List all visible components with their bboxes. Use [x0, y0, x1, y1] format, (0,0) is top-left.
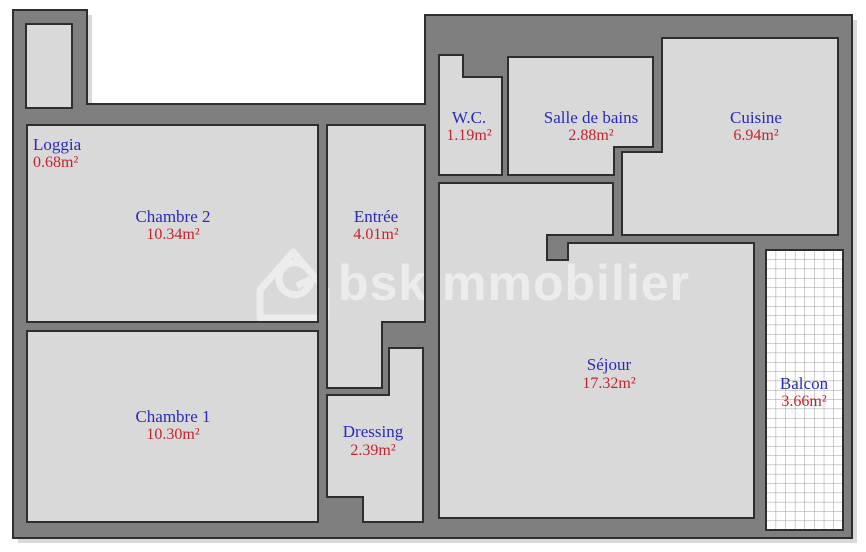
- label-cuisine-name: Cuisine: [730, 108, 782, 127]
- label-sdb-area: 2.88m²: [568, 127, 613, 144]
- label-loggia-area: 0.68m²: [33, 154, 78, 171]
- label-sdb-name: Salle de bains: [544, 108, 638, 127]
- label-balcon-area: 3.66m²: [781, 393, 826, 410]
- label-sejour-area: 17.32m²: [582, 375, 635, 392]
- floorplan-page: bskimmobilier Loggia 0.68m² Chambre 2 10…: [0, 0, 866, 552]
- room-loggia: [26, 24, 72, 108]
- label-cuisine-area: 6.94m²: [733, 127, 778, 144]
- label-entree-name: Entrée: [354, 207, 398, 226]
- label-loggia-name: Loggia: [33, 135, 82, 154]
- label-dressing-name: Dressing: [343, 422, 404, 441]
- label-wc-area: 1.19m²: [446, 127, 491, 144]
- label-chambre1-area: 10.30m²: [146, 426, 199, 443]
- label-chambre2-area: 10.34m²: [146, 226, 199, 243]
- label-dressing-area: 2.39m²: [350, 442, 395, 459]
- label-entree-area: 4.01m²: [353, 226, 398, 243]
- label-sejour-name: Séjour: [587, 355, 632, 374]
- floorplan-canvas: bskimmobilier Loggia 0.68m² Chambre 2 10…: [0, 0, 866, 552]
- label-chambre1-name: Chambre 1: [135, 407, 210, 426]
- label-balcon-name: Balcon: [780, 374, 829, 393]
- label-chambre2-name: Chambre 2: [135, 207, 210, 226]
- label-wc-name: W.C.: [452, 108, 486, 127]
